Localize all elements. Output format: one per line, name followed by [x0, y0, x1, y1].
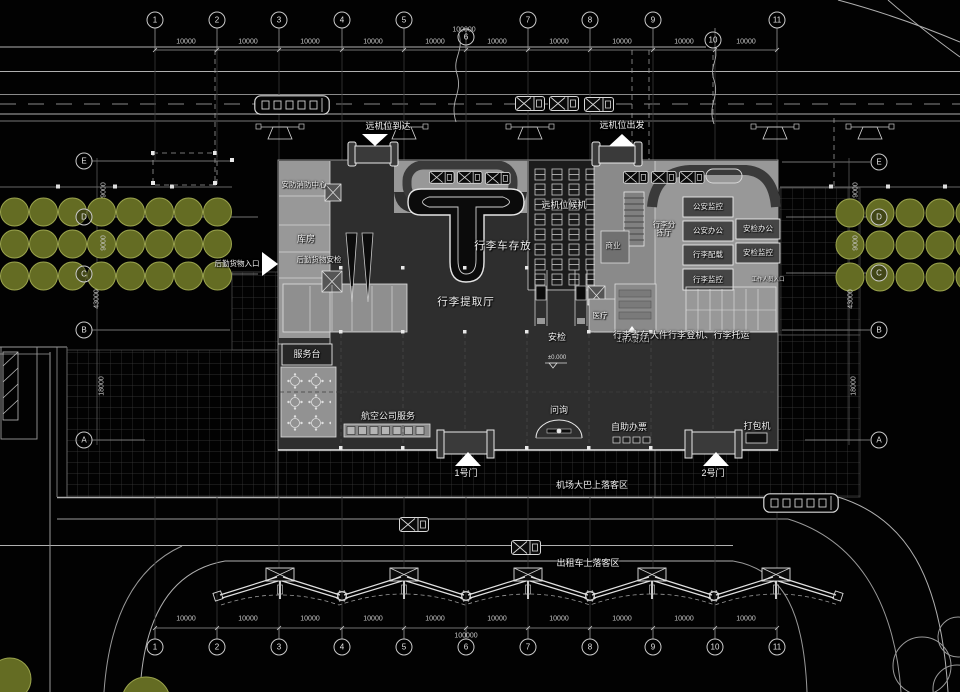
dim-total: 100000 [454, 633, 477, 640]
label-remote-arrival: 远机位到达 [365, 122, 410, 132]
grid-bubble-left-C: C [76, 266, 93, 283]
tree [0, 658, 31, 692]
label-baggage-stowage: 行李配载 [693, 251, 723, 259]
dim-bay: 10000 [300, 39, 319, 46]
dim-bay: 10000 [612, 39, 631, 46]
label-baggage-monitoring: 行李监控 [693, 276, 723, 284]
label-service-desk: 服务台 [293, 350, 320, 360]
baggage-deposit-room [615, 284, 656, 332]
site-plan-drawing [0, 0, 960, 692]
grid-bubble-bottom-4: 4 [334, 639, 351, 656]
dim-bay: 10000 [238, 39, 257, 46]
dim-bay: 10000 [549, 616, 568, 623]
label-oversize-baggage: 大件行李 [650, 331, 686, 341]
grid-bubble-left-E: E [76, 153, 93, 170]
label-storage: 库房 [297, 235, 315, 245]
label-packing-machine: 打包机 [743, 422, 770, 432]
label-baggage-claim-hall: 行李提取厅 [437, 297, 495, 309]
label-information: 问询 [550, 406, 568, 416]
grid-bubble-top-9: 9 [645, 12, 662, 29]
grid-bubble-left-B: B [76, 322, 93, 339]
dim-bay: 10000 [363, 39, 382, 46]
dim-bay: 10000 [487, 616, 506, 623]
dim-bay: 10000 [425, 616, 444, 623]
grid-bubble-top-10: 10 [705, 32, 722, 49]
label-security-check: 安检 [548, 333, 566, 343]
grid-bubble-top-3: 3 [271, 12, 288, 29]
grid-bubble-bottom-6: 6 [458, 639, 475, 656]
label-gate1: 1号门 [454, 469, 477, 479]
grid-bubble-top-8: 8 [582, 12, 599, 29]
grid-bubble-bottom-11: 11 [769, 639, 786, 656]
dim-43000: 43000 [848, 289, 855, 308]
grid-bubble-top-1: 1 [147, 12, 164, 29]
level-annotation: ±0.000 [548, 355, 566, 361]
dim-9000: 9000 [101, 182, 108, 198]
grid-bubble-top-7: 7 [520, 12, 537, 29]
grid-bubble-left-A: A [76, 432, 93, 449]
dim-bay: 10000 [674, 39, 693, 46]
label-boarding-baggage-checkin: 登机、行李托运 [686, 331, 749, 341]
dim-bay: 10000 [425, 39, 444, 46]
north-roads [0, 0, 960, 121]
label-security-office: 安检办公 [743, 225, 773, 233]
dim-bay: 10000 [549, 39, 568, 46]
grid-bubble-bottom-9: 9 [645, 639, 662, 656]
label-cargo-entrance: 后勤货物入口 [215, 260, 260, 268]
dim-bay: 10000 [736, 616, 755, 623]
grid-bubble-bottom-5: 5 [396, 639, 413, 656]
grid-bubble-left-D: D [76, 209, 93, 226]
label-bus-zone: 机场大巴上落客区 [556, 481, 628, 491]
dim-bay: 10000 [736, 39, 755, 46]
dim-total: 100000 [452, 27, 475, 34]
dim-bay: 10000 [674, 616, 693, 623]
grid-bubble-top-5: 5 [396, 12, 413, 29]
dim-bay: 10000 [487, 39, 506, 46]
label-baggage-sorting-hall: 行李分拣厅 [651, 221, 677, 238]
label-security-monitoring: 安检监控 [743, 249, 773, 257]
grid-bubble-top-11: 11 [769, 12, 786, 29]
airline-counter [344, 424, 430, 437]
parking-hatch [1, 347, 37, 439]
dim-18000: 18000 [851, 376, 858, 395]
arrival-arrow-icon [362, 134, 388, 146]
label-commercial: 商业 [606, 242, 621, 250]
label-remote-departure: 远机位出发 [599, 121, 644, 131]
label-police-monitoring: 公安监控 [693, 203, 723, 211]
label-taxi-zone: 出租车上落客区 [556, 559, 619, 569]
dim-bay: 10000 [176, 616, 195, 623]
dim-bay: 10000 [612, 616, 631, 623]
dim-bay: 10000 [300, 616, 319, 623]
grid-bubble-right-B: B [871, 322, 888, 339]
label-logistics-cargo-check: 后勤货物安检 [297, 256, 342, 264]
label-security-fire-center: 安防消防中心 [282, 181, 327, 189]
dim-18000: 18000 [99, 376, 106, 395]
label-staff-entrance: 工作人员入口 [751, 277, 784, 283]
dim-bay: 10000 [176, 39, 195, 46]
tables [285, 371, 331, 433]
grid-bubble-top-4: 4 [334, 12, 351, 29]
terminal-floor-plan: 1 2 3 4 5 6 7 8 9 10 11 1 2 3 4 5 6 7 8 … [0, 0, 960, 692]
grid-bubble-bottom-7: 7 [520, 639, 537, 656]
dim-9000: 9000 [853, 182, 860, 198]
label-medical: 医疗 [593, 312, 608, 320]
grid-bubble-bottom-10: 10 [707, 639, 724, 656]
dim-bay: 10000 [238, 616, 257, 623]
grid-bubble-right-E: E [871, 154, 888, 171]
label-baggage-cart-storage: 行李车存放 [474, 241, 532, 253]
road-canopies [256, 124, 894, 139]
dim-43000: 43000 [94, 289, 101, 308]
label-remote-stand-waiting: 远机位候机 [541, 201, 586, 211]
label-self-service-ticketing: 自助办票 [611, 423, 647, 433]
packing-machine-box [746, 433, 767, 443]
tree-outline [893, 637, 951, 692]
grid-bubble-bottom-3: 3 [271, 639, 288, 656]
grid-bubble-top-2: 2 [209, 12, 226, 29]
waiting-seats [533, 168, 595, 288]
tree [122, 677, 170, 692]
grid-bubble-bottom-2: 2 [209, 639, 226, 656]
label-police-office: 公安办公 [693, 227, 723, 235]
label-gate2: 2号门 [701, 469, 724, 479]
grid-bubble-right-C: C [871, 265, 888, 282]
dim-9000: 9000 [853, 235, 860, 251]
gate2-vestibule [685, 430, 742, 458]
label-airline-service: 航空公司服务 [361, 412, 415, 422]
grid-bubble-bottom-1: 1 [147, 639, 164, 656]
grid-bubble-bottom-8: 8 [582, 639, 599, 656]
grid-bubble-right-A: A [871, 432, 888, 449]
north-vestibule-arrival [348, 142, 398, 166]
label-baggage-deposit: 行李寄存 [613, 331, 649, 341]
corner-markers [151, 151, 234, 185]
dim-bay: 10000 [363, 616, 382, 623]
gate1-vestibule [437, 430, 494, 458]
departure-arrow-icon [609, 134, 635, 146]
grid-bubble-right-D: D [871, 209, 888, 226]
dim-9000: 9000 [101, 235, 108, 251]
